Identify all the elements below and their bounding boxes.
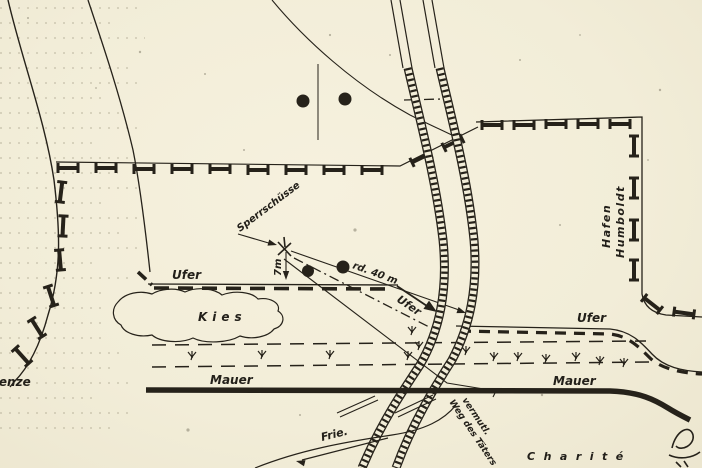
- quay-ticks-west-arc: [11, 180, 69, 368]
- label-kies: Kies: [198, 310, 247, 324]
- road-curve-bottom: [255, 405, 456, 468]
- quay-tick: [629, 135, 639, 158]
- vegetation-tuft: [408, 326, 416, 335]
- quay-tick: [609, 119, 632, 129]
- label-humboldt-2: Hafen: [600, 204, 613, 248]
- label-weg-des-taeters: vermutl. Weg des Täters: [447, 396, 499, 468]
- vegetation-tuft: [572, 352, 580, 361]
- label-mauer-west: Mauer: [210, 373, 254, 387]
- hafen-basin-wall: [476, 117, 702, 317]
- vegetation-tuft: [462, 346, 470, 355]
- quay-tick: [171, 164, 194, 174]
- ufer-west-dashes: [154, 288, 392, 289]
- shore-curve-inner: [88, 0, 150, 272]
- quay-tick: [640, 293, 664, 315]
- label-grenze: renze: [0, 375, 31, 389]
- quay-tick: [323, 165, 346, 175]
- quay-tick: [95, 163, 118, 173]
- border-dashdot-bridge: [404, 99, 442, 100]
- quay-tick: [361, 165, 384, 175]
- quay-ticks-top: [57, 133, 466, 175]
- vegetation-tuft: [490, 352, 498, 361]
- bullet-dot: [337, 261, 350, 274]
- scanned-map-page: Ufer Ufer Ufer Kies Mauer Mauer renze Sp…: [0, 0, 702, 468]
- strip-dashed-upper: [152, 341, 646, 345]
- ufer-west-dashes-corner: [138, 272, 152, 285]
- quay-tick: [54, 248, 66, 272]
- ufer-west-line: [148, 284, 398, 285]
- quay-tick: [629, 219, 639, 242]
- paper-speckles: [27, 17, 661, 432]
- x-marker: [278, 237, 291, 256]
- vegetation-tuft: [514, 352, 522, 361]
- quay-tick: [55, 180, 68, 204]
- vegetation-tuft: [326, 350, 334, 359]
- quay-tick: [629, 259, 639, 282]
- label-ufer-west: Ufer: [172, 268, 202, 282]
- bullet-dot: [297, 95, 310, 108]
- bridge-band-east: [396, 68, 475, 468]
- signature-scribble: [669, 429, 700, 467]
- vegetation-tuft: [258, 350, 266, 359]
- label-humboldt-1: Humboldt: [614, 185, 627, 258]
- label-ufer-east: Ufer: [577, 311, 607, 325]
- label-7m: 7m: [273, 259, 284, 276]
- quay-tick: [247, 165, 270, 175]
- quay-tick: [672, 306, 696, 319]
- measure-40m-line: [291, 251, 462, 311]
- quay-ticks-hafen: [481, 119, 697, 320]
- bridge-approach-lines: [391, 0, 444, 68]
- road-curve-top: [272, 0, 462, 140]
- water-texture: [0, 8, 145, 428]
- quay-tick: [577, 119, 600, 129]
- quay-tick: [629, 177, 639, 200]
- quay-tick: [11, 344, 34, 368]
- west-shore-arc: [8, 0, 59, 387]
- quay-tick: [209, 164, 232, 174]
- arrowhead: [267, 239, 277, 248]
- label-40m: rd. 40 m: [351, 260, 399, 286]
- bullet-dot: [339, 93, 352, 106]
- label-frie: Frie.: [320, 425, 349, 444]
- label-charite: Charité: [527, 450, 632, 463]
- label-sperrschuesse: Sperrschüsse: [235, 180, 302, 235]
- quay-tick: [513, 120, 536, 130]
- map-canvas: Ufer Ufer Ufer Kies Mauer Mauer renze Sp…: [0, 0, 702, 468]
- ufer-east-dashes: [460, 331, 702, 374]
- vegetation-tuft: [542, 354, 550, 363]
- label-mauer-east: Mauer: [553, 374, 597, 388]
- quay-tick: [545, 119, 568, 129]
- strip-dashed-lower: [152, 362, 652, 367]
- quay-tick: [285, 165, 308, 175]
- bullet-dot: [302, 265, 314, 277]
- sperrschuesse-arrow-line: [238, 234, 272, 244]
- vegetation-tuft: [596, 356, 604, 365]
- quay-tick: [57, 163, 80, 173]
- vegetation-tuft: [188, 351, 196, 360]
